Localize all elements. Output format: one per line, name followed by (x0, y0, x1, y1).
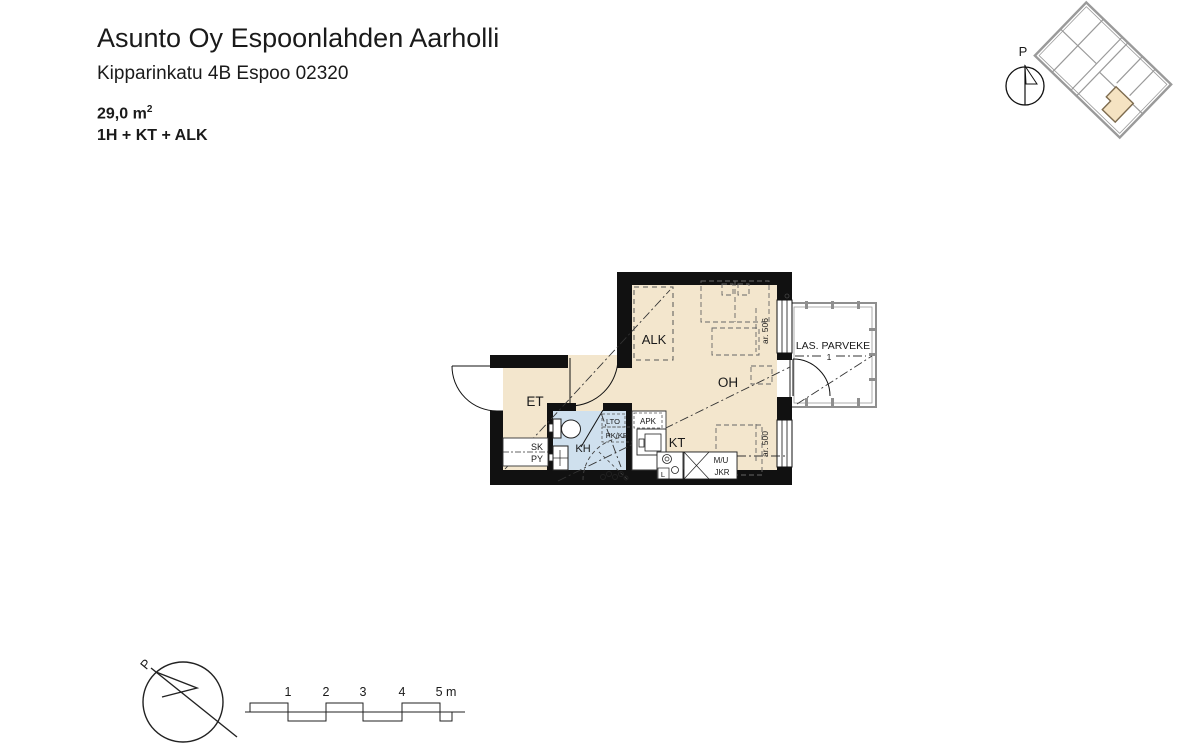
room-label-alk: ALK (642, 332, 667, 347)
room-label-kh: KH (575, 443, 590, 455)
toilet-tank (553, 419, 561, 438)
wall-segment (490, 470, 792, 485)
apartment-layout-code: 1H + KT + ALK (97, 127, 499, 145)
apartment-area: 29,0 m2 (97, 104, 499, 123)
interior-door-opening-floor (568, 355, 617, 368)
area-value: 29,0 m (97, 105, 147, 122)
fixture-label-stove: L (661, 470, 665, 479)
compass-arrowhead (156, 672, 197, 697)
compass-needle (151, 668, 237, 737)
fixture-label-jkr: JKR (714, 468, 729, 477)
window (777, 420, 792, 467)
floor-plan-drawing: ALK OH ET KT KH LAS. PARVEKE SK PY LTO P… (440, 250, 890, 500)
balcony-glazed-wall (790, 303, 876, 407)
scale-label-5m: 5 m (436, 685, 457, 699)
room-label-oh: OH (718, 375, 738, 390)
location-diagram: P Sijainti (990, 0, 1179, 210)
toilet-bowl (562, 420, 581, 438)
compass-north-label: P (137, 656, 154, 672)
location-diagram-drawing: P (990, 0, 1179, 210)
entrance-door-swing (452, 366, 497, 411)
annotation-ar-lower: ar. 500 (760, 431, 770, 457)
scale-bar: 1 2 3 4 5 m (238, 672, 478, 732)
scale-label-1: 1 (285, 685, 292, 699)
annotation-ar-upper: ar. 506 (760, 318, 770, 344)
wall-segment (777, 272, 792, 300)
title-block: Asunto Oy Espoonlahden Aarholli Kipparin… (97, 24, 499, 145)
fixture-label-py: PY (531, 454, 543, 464)
wall-segment (777, 397, 792, 420)
wall-segment (777, 353, 792, 360)
wall-segment (617, 272, 792, 285)
location-compass-pennant (1025, 66, 1037, 84)
annotation-balcony-mark: 1 (827, 352, 832, 362)
floor-plan-page: Asunto Oy Espoonlahden Aarholli Kipparin… (0, 0, 1179, 744)
location-north-label: P (1019, 44, 1028, 59)
fixture-label-lto: LTO (606, 417, 620, 426)
wall-segment (547, 403, 576, 411)
room-label-kt: KT (669, 435, 686, 450)
window (777, 300, 792, 353)
balcony (790, 301, 877, 407)
fixture-label-sk: SK (531, 442, 543, 452)
scale-label-2: 2 (323, 685, 330, 699)
wall-segment (490, 355, 503, 363)
building-outline (1035, 2, 1171, 137)
scale-label-4: 4 (399, 685, 406, 699)
compass-circle (143, 662, 223, 742)
fixture-label-mu: M/U (714, 456, 729, 465)
project-title: Asunto Oy Espoonlahden Aarholli (97, 24, 499, 54)
wall-segment (617, 272, 632, 368)
fixture-label-apk: APK (640, 417, 657, 426)
room-label-balcony: LAS. PARVEKE (796, 340, 870, 352)
address-line: Kipparinkatu 4B Espoo 02320 (97, 63, 499, 85)
room-label-et: ET (526, 394, 543, 409)
fixture-label-pkkr: PK/KR (606, 431, 629, 440)
scale-label-3: 3 (360, 685, 367, 699)
area-superscript: 2 (147, 104, 153, 115)
